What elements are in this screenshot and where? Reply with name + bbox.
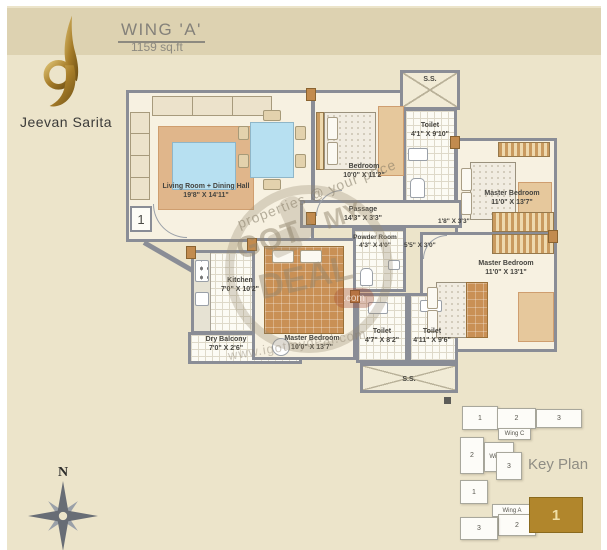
washbasin xyxy=(388,260,400,270)
wall-column xyxy=(548,230,558,243)
compass-north-label: N xyxy=(25,465,101,481)
keyplan-highlighted-unit: 1 xyxy=(529,497,583,533)
wardrobe xyxy=(492,212,554,232)
blanket xyxy=(466,282,488,338)
label-ss-top: S.S. xyxy=(414,76,446,85)
dining-chair xyxy=(263,110,281,121)
dining-chair xyxy=(295,154,306,168)
keyplan-unit: 1 xyxy=(460,480,488,504)
pillow xyxy=(300,250,322,263)
stove xyxy=(195,260,209,282)
floor-plan-sheet: WING 'A' 1159 sq.ft Jeevan Sarita xyxy=(0,0,607,550)
pillow xyxy=(461,168,472,191)
kitchen-sink xyxy=(195,292,209,306)
sofa xyxy=(152,96,272,116)
bed-headboard xyxy=(316,112,324,170)
wc xyxy=(360,268,373,286)
label-dry-balcony: Dry Balcony 7'0" X 2'6" xyxy=(194,336,258,354)
bedroom-rug xyxy=(518,292,554,342)
wall-column xyxy=(350,290,360,303)
pillow xyxy=(272,250,294,263)
dining-table xyxy=(250,122,294,178)
label-powder-room: Powder Room 4'3" X 4'0" xyxy=(352,234,398,250)
label-master-top-right: Master Bedroom 11'0" X 13'7" xyxy=(466,190,558,208)
label-master-right: Master Bedroom 11'0" X 13'1" xyxy=(458,260,554,278)
entrance-number: 1 xyxy=(130,206,152,232)
area-label: 1159 sq.ft xyxy=(131,40,183,54)
compass: N xyxy=(25,465,101,550)
label-dim-small-1: 1'8" X 3'3" xyxy=(438,218,470,225)
keyplan-unit: 3 xyxy=(460,517,498,540)
keyplan-unit: 2 xyxy=(497,408,536,429)
compass-rose-icon xyxy=(25,481,101,550)
keyplan-unit: 3 xyxy=(496,452,522,480)
dining-chair xyxy=(295,126,306,140)
keyplan-bullet xyxy=(444,397,451,404)
label-ss-bottom: S.S. xyxy=(394,376,424,385)
dining-chair xyxy=(263,179,281,190)
keyplan-unit: 3 xyxy=(536,409,582,428)
wall-column xyxy=(306,212,316,225)
pillow xyxy=(427,287,438,309)
label-toilet-bottom-left: Toilet 4'7" X 8'2" xyxy=(360,328,404,346)
keyplan-wing-c-label: Wing C xyxy=(498,428,531,440)
label-living-dining: Living Room + Dining Hall 19'8" X 14'11" xyxy=(158,183,254,201)
washbasin xyxy=(408,148,428,161)
pillow xyxy=(327,142,338,165)
label-passage: Passage 14'3" X 3'3" xyxy=(330,206,396,224)
keyplan-title: Key Plan xyxy=(528,456,588,473)
label-master-bottom: Master Bedroom 10'0" X 13'7" xyxy=(266,335,358,353)
brand-logo-icon xyxy=(40,12,88,112)
label-kitchen: Kitchen 7'0" X 10'2" xyxy=(212,277,268,295)
dining-chair xyxy=(238,126,249,140)
label-toilet-top: Toilet 4'1" X 9'10" xyxy=(406,122,454,140)
wall-column xyxy=(306,88,316,101)
header-band xyxy=(7,8,601,55)
keyplan-unit: 2 xyxy=(460,437,484,474)
keyplan-unit: 1 xyxy=(462,406,498,430)
label-bedroom: Bedroom 10'0" X 11'2" xyxy=(322,163,406,181)
wall-column xyxy=(247,238,257,251)
pillow xyxy=(327,117,338,140)
wardrobe xyxy=(498,142,550,157)
washbasin xyxy=(368,302,388,314)
dining-chair xyxy=(238,154,249,168)
sofa-side xyxy=(130,112,150,200)
brand-name: Jeevan Sarita xyxy=(10,114,122,130)
wall-column xyxy=(186,246,196,259)
label-dim-small-2: 5'5" X 3'0" xyxy=(404,242,436,249)
label-toilet-bottom-right: Toilet 4'11" X 9'6" xyxy=(408,328,456,346)
wc xyxy=(410,178,425,198)
wardrobe xyxy=(492,234,554,254)
